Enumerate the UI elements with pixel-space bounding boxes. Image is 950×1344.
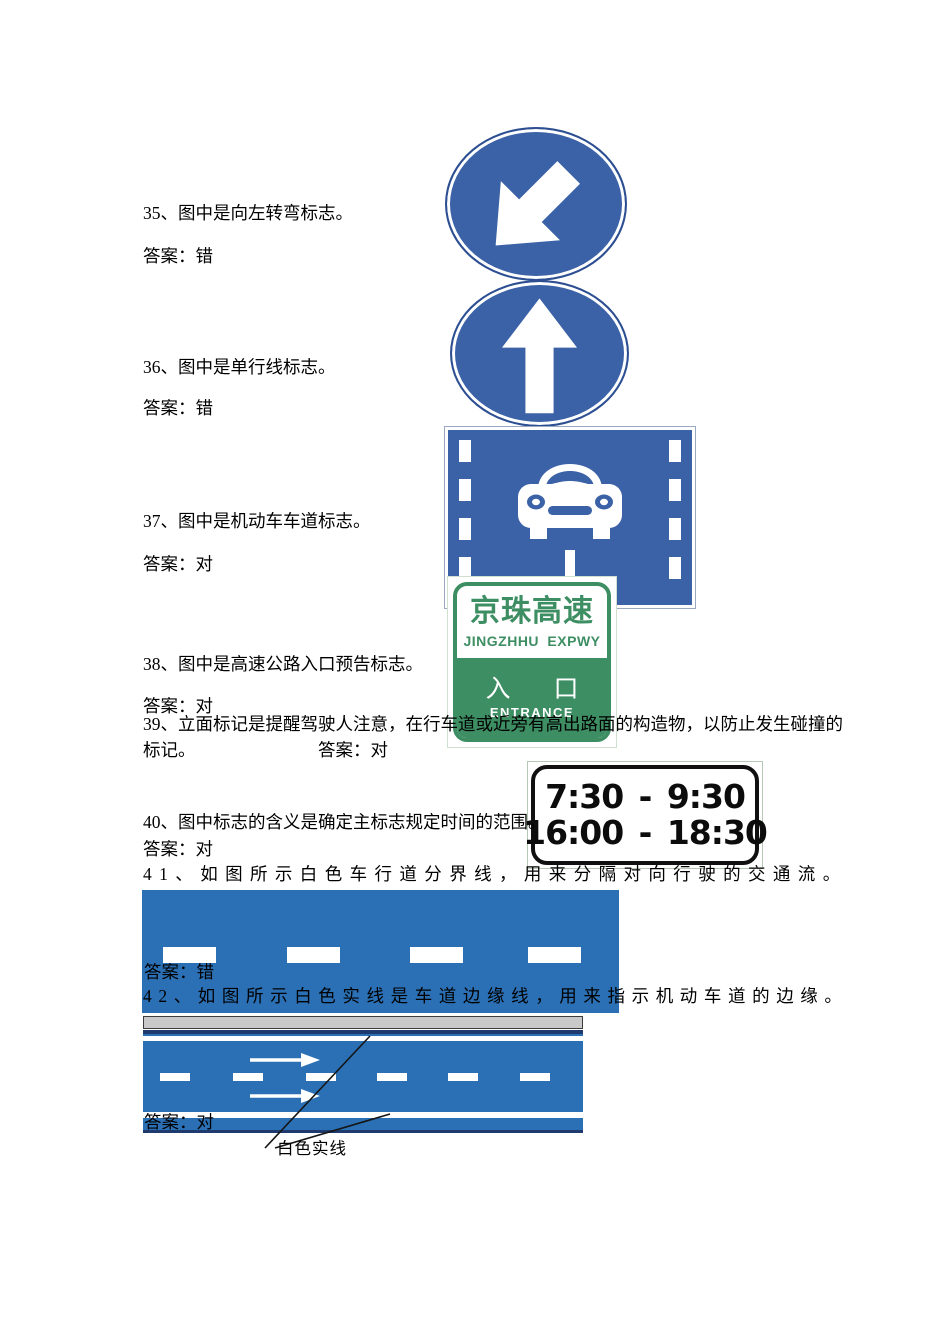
question-40-answer: 答案：对 [143, 839, 213, 861]
white-solid-line-label: 白色实线 [277, 1139, 347, 1160]
question-35-text: 35、图中是向左转弯标志。 [143, 203, 353, 225]
question-36-text: 36、图中是单行线标志。 [143, 357, 336, 379]
time-range-line-1: 7:30 - 9:30 [545, 779, 745, 815]
lane-dash [287, 947, 340, 963]
expressway-pinyin: JINGZHHU EXPWY [463, 634, 600, 648]
straight-arrow-icon [473, 296, 606, 413]
keep-left-arrow-icon [468, 144, 603, 267]
question-40-text: 40、图中标志的含义是确定主标志规定时间的范围。 [143, 812, 546, 834]
question-38-text: 38、图中是高速公路入口预告标志。 [143, 654, 423, 676]
lane-dash [520, 1073, 550, 1081]
question-35-answer: 答案：错 [143, 246, 213, 268]
lane-dash [528, 947, 581, 963]
sidewalk-bar [143, 1016, 583, 1029]
lane-dash [160, 1073, 190, 1081]
time-range-sign: 7:30 - 9:30 16:00 - 18:30 [527, 761, 763, 869]
question-39-answer: 答案：对 [318, 740, 388, 762]
question-41-answer: 答案：错 [144, 962, 214, 984]
question-37-answer: 答案：对 [143, 554, 213, 576]
lane-dash-column-left [459, 440, 471, 595]
straight-ahead-sign [450, 280, 629, 427]
expressway-sign-top: 京珠高速 JINGZHHU EXPWY [457, 586, 607, 658]
white-solid-edge-line-top [143, 1036, 583, 1041]
direction-arrows-icon [248, 1050, 323, 1106]
question-42-answer: 答案：对 [144, 1112, 214, 1134]
question-37-text: 37、图中是机动车车道标志。 [143, 511, 371, 533]
lane-dash [448, 1073, 478, 1081]
lane-dash [410, 947, 463, 963]
question-42-text: 42、如图所示白色实线是车道边缘线，用来指示机动车道的边缘。 [143, 986, 849, 1008]
lane-dash-column-right [669, 440, 681, 595]
keep-left-sign [445, 127, 627, 281]
lane-dash [163, 947, 216, 963]
question-39-text-line2: 标记。 [143, 740, 196, 762]
question-36-answer: 答案：错 [143, 398, 213, 420]
time-range-sign-frame: 7:30 - 9:30 16:00 - 18:30 [531, 765, 759, 865]
expressway-name: 京珠高速 [470, 597, 594, 627]
lane-dash [377, 1073, 407, 1081]
document-page: 京珠高速 JINGZHHU EXPWY 入 口 ENTRANCE 7:30 - … [0, 0, 950, 1344]
question-41-text: 41、如图所示白色车行道分界线，用来分隔对向行驶的交通流。 [143, 864, 848, 886]
question-39-text-line1: 39、立面标记是提醒驾驶人注意，在行车道或近旁有高出路面的构造物，以防止发生碰撞… [143, 714, 843, 736]
entrance-chinese: 入 口 [468, 677, 597, 702]
time-range-line-2: 16:00 - 18:30 [523, 815, 767, 851]
